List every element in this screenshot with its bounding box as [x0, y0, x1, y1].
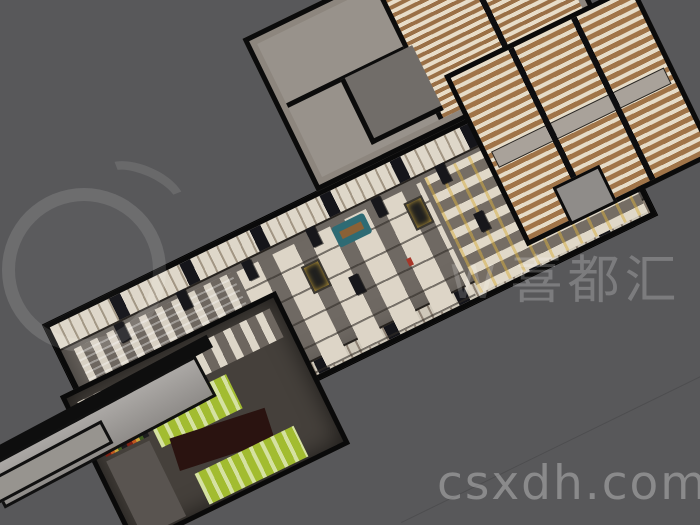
wing-aisle	[491, 68, 671, 168]
render-canvas: W喜都汇 csxdh.com	[0, 0, 700, 525]
brand-watermark-prefix: W	[450, 255, 500, 309]
brand-watermark: W喜都汇	[450, 238, 682, 313]
website-watermark: csxdh.com	[437, 456, 700, 511]
brand-watermark-cn: 喜都汇	[510, 251, 681, 311]
